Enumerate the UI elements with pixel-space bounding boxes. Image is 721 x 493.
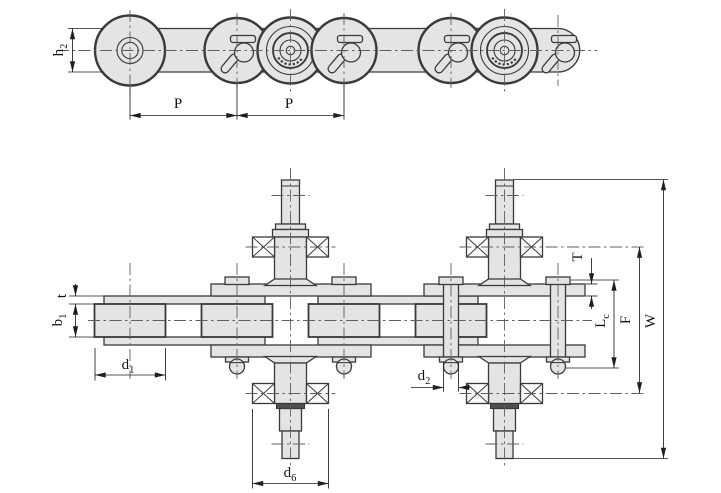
dim-label-t: t xyxy=(55,294,74,298)
bottom-view-plan xyxy=(88,168,644,469)
dim-label-d6: d6 xyxy=(284,466,297,485)
inner-plate xyxy=(104,337,265,345)
dim-label-d2: d2 xyxy=(418,369,431,388)
dim-label-pitch-left: P xyxy=(174,97,182,116)
drawing-linework xyxy=(0,0,721,493)
dim-label-W: W xyxy=(644,314,663,328)
dim-label-d1: d1 xyxy=(122,358,135,377)
chain-technical-drawing: h2 P P t b1 d1 d2 d6 T Lc F W xyxy=(0,0,721,493)
top-view-side-elevation xyxy=(57,9,597,93)
dim-label-h2: h2 xyxy=(52,44,71,57)
dim-label-F: F xyxy=(619,316,638,324)
dim-label-T: T xyxy=(571,252,590,261)
dim-label-Lc: Lc xyxy=(594,314,613,328)
inner-plate xyxy=(104,296,265,304)
dim-label-pitch-right: P xyxy=(285,97,293,116)
dim-label-b1: b1 xyxy=(51,314,70,327)
outer-plate xyxy=(211,345,371,357)
